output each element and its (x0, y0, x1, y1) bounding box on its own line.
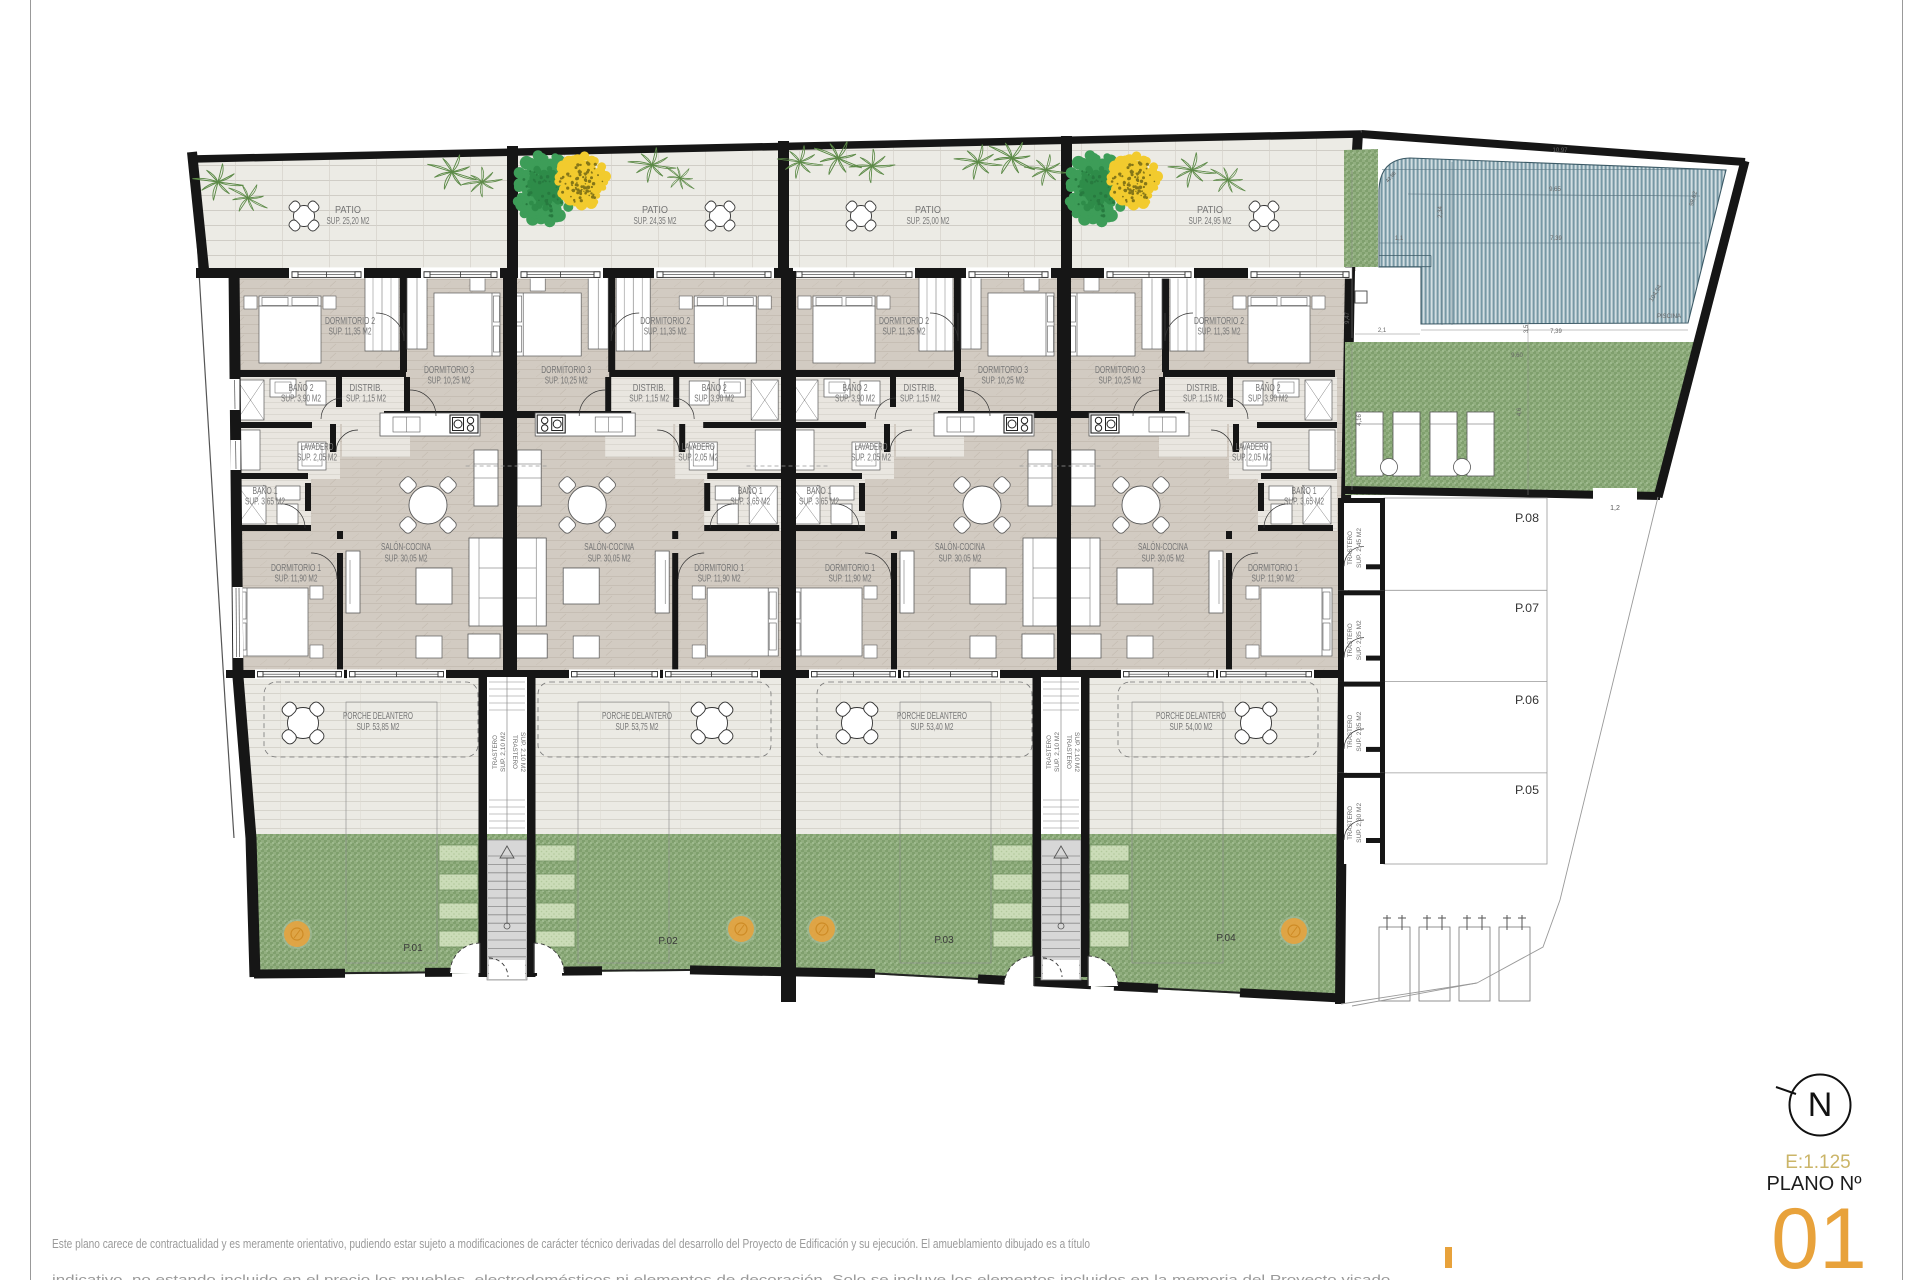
svg-text:P.06: P.06 (1515, 695, 1539, 707)
svg-text:PISCINA: PISCINA (1657, 314, 1681, 320)
svg-text:SUP. 3,90 M2: SUP. 3,90 M2 (1248, 394, 1288, 405)
svg-text:TRASTERO: TRASTERO (1347, 806, 1354, 840)
svg-text:DISTRIB.: DISTRIB. (350, 383, 383, 394)
svg-text:10,97: 10,97 (1552, 148, 1568, 154)
svg-text:SUP. 1,15 M2: SUP. 1,15 M2 (346, 394, 386, 405)
svg-text:DORMITORIO 2: DORMITORIO 2 (1194, 316, 1244, 327)
svg-text:SUP. 2,45 M2: SUP. 2,45 M2 (1356, 528, 1363, 568)
svg-text:DORMITORIO 1: DORMITORIO 1 (271, 563, 321, 574)
svg-text:P.02: P.02 (658, 936, 678, 947)
svg-text:TRASTERO: TRASTERO (511, 735, 518, 769)
svg-text:SUP. 54,00 M2: SUP. 54,00 M2 (1170, 722, 1213, 733)
svg-text:PATIO: PATIO (642, 205, 668, 216)
svg-text:SUP. 10,25 M2: SUP. 10,25 M2 (1099, 376, 1142, 387)
svg-text:P.05: P.05 (1515, 785, 1539, 797)
svg-text:3,5: 3,5 (1524, 324, 1530, 333)
svg-text:BAÑO 2: BAÑO 2 (843, 381, 868, 394)
svg-text:DORMITORIO 1: DORMITORIO 1 (825, 563, 875, 574)
svg-text:7,39: 7,39 (1550, 329, 1562, 335)
svg-text:indicativo, no estando incluid: indicativo, no estando incluido en el pr… (52, 1272, 1395, 1280)
svg-text:E:1.125: E:1.125 (1785, 1152, 1851, 1173)
svg-text:01: 01 (1771, 1191, 1867, 1280)
svg-text:BAÑO 1: BAÑO 1 (253, 484, 278, 497)
svg-text:DORMITORIO 2: DORMITORIO 2 (325, 316, 375, 327)
svg-text:SUP. 3,65 M2: SUP. 3,65 M2 (799, 497, 839, 508)
svg-text:SUP. 11,35 M2: SUP. 11,35 M2 (1198, 327, 1241, 338)
svg-text:SUP. 2,10 M2: SUP. 2,10 M2 (500, 732, 507, 772)
svg-text:SUP. 53,75 M2: SUP. 53,75 M2 (616, 722, 659, 733)
svg-text:SUP. 2,05 M2: SUP. 2,05 M2 (678, 453, 718, 464)
svg-text:SUP. 3,90 M2: SUP. 3,90 M2 (835, 394, 875, 405)
svg-text:BAÑO 2: BAÑO 2 (289, 381, 314, 394)
svg-text:SUP. 3,65 M2: SUP. 3,65 M2 (245, 497, 285, 508)
svg-text:P.07: P.07 (1515, 603, 1539, 615)
svg-text:P.03: P.03 (934, 935, 954, 946)
svg-text:SUP. 53,85 M2: SUP. 53,85 M2 (357, 722, 400, 733)
svg-text:DORMITORIO 3: DORMITORIO 3 (1095, 365, 1145, 376)
svg-text:SUP. 2,35 M2: SUP. 2,35 M2 (1356, 620, 1363, 660)
svg-text:TRASTERO: TRASTERO (492, 735, 499, 769)
svg-text:BAÑO 1: BAÑO 1 (807, 484, 832, 497)
svg-text:SALÓN-COCINA: SALÓN-COCINA (935, 540, 985, 553)
svg-text:SUP. 11,90 M2: SUP. 11,90 M2 (275, 574, 318, 585)
svg-text:P.08: P.08 (1515, 513, 1539, 525)
svg-text:PORCHE DELANTERO: PORCHE DELANTERO (602, 711, 672, 722)
svg-text:Este plano carece de contractu: Este plano carece de contractualidad y e… (52, 1236, 1090, 1251)
svg-text:SUP. 2,05 M2: SUP. 2,05 M2 (851, 453, 891, 464)
svg-text:DISTRIB.: DISTRIB. (1187, 383, 1220, 394)
svg-text:SUP. 11,35 M2: SUP. 11,35 M2 (644, 327, 687, 338)
svg-text:LAVADERO: LAVADERO (1236, 442, 1269, 453)
svg-text:SUP. 2,35 M2: SUP. 2,35 M2 (1356, 711, 1363, 751)
svg-text:LAVADERO: LAVADERO (301, 442, 334, 453)
svg-text:SUP. 10,25 M2: SUP. 10,25 M2 (428, 376, 471, 387)
svg-text:SUP. 24,95 M2: SUP. 24,95 M2 (1189, 216, 1232, 227)
svg-text:4,6: 4,6 (1517, 407, 1523, 416)
svg-text:SUP. 1,15 M2: SUP. 1,15 M2 (1183, 394, 1223, 405)
svg-text:TRASTERO: TRASTERO (1347, 623, 1354, 657)
svg-text:SUP. 24,35 M2: SUP. 24,35 M2 (634, 216, 677, 227)
svg-text:SUP. 2,10 M2: SUP. 2,10 M2 (519, 732, 526, 772)
svg-text:SUP. 30,05 M2: SUP. 30,05 M2 (588, 554, 631, 565)
svg-text:7,39: 7,39 (1550, 236, 1562, 242)
svg-text:SUP. 2,30 M2: SUP. 2,30 M2 (1356, 803, 1363, 843)
svg-text:SUP. 25,20 M2: SUP. 25,20 M2 (327, 216, 370, 227)
svg-text:4,16: 4,16 (1357, 414, 1363, 426)
svg-text:PATIO: PATIO (1197, 205, 1223, 216)
svg-text:N: N (1808, 1086, 1833, 1124)
svg-text:DORMITORIO 2: DORMITORIO 2 (640, 316, 690, 327)
svg-text:SUP. 1,15 M2: SUP. 1,15 M2 (629, 394, 669, 405)
svg-text:SUP. 3,90 M2: SUP. 3,90 M2 (281, 394, 321, 405)
svg-text:SUP. 53,40 M2: SUP. 53,40 M2 (911, 722, 954, 733)
svg-text:SUP. 25,00 M2: SUP. 25,00 M2 (907, 216, 950, 227)
svg-text:SUP. 2,05 M2: SUP. 2,05 M2 (1232, 453, 1272, 464)
svg-text:DISTRIB.: DISTRIB. (904, 383, 937, 394)
svg-text:SUP. 30,05 M2: SUP. 30,05 M2 (939, 554, 982, 565)
svg-text:9,65: 9,65 (1549, 187, 1561, 193)
svg-text:BAÑO 2: BAÑO 2 (702, 381, 727, 394)
svg-text:SUP. 2,05 M2: SUP. 2,05 M2 (297, 453, 337, 464)
svg-text:SALÓN-COCINA: SALÓN-COCINA (1138, 540, 1188, 553)
svg-text:SUP. 3,65 M2: SUP. 3,65 M2 (1284, 497, 1324, 508)
svg-text:SUP. 30,05 M2: SUP. 30,05 M2 (1142, 554, 1185, 565)
svg-text:2,34: 2,34 (1438, 206, 1444, 218)
svg-text:SUP. 1,15 M2: SUP. 1,15 M2 (900, 394, 940, 405)
svg-text:PORCHE DELANTERO: PORCHE DELANTERO (1156, 711, 1226, 722)
svg-text:DORMITORIO 2: DORMITORIO 2 (879, 316, 929, 327)
svg-text:SUP. 2,10 M2: SUP. 2,10 M2 (1073, 732, 1080, 772)
svg-text:SUP. 3,65 M2: SUP. 3,65 M2 (730, 497, 770, 508)
svg-text:PORCHE DELANTERO: PORCHE DELANTERO (897, 711, 967, 722)
svg-text:DORMITORIO 3: DORMITORIO 3 (978, 365, 1028, 376)
svg-text:LAVADERO: LAVADERO (855, 442, 888, 453)
svg-text:SUP. 2,10 M2: SUP. 2,10 M2 (1054, 732, 1061, 772)
svg-text:2,1: 2,1 (1378, 328, 1387, 334)
svg-text:P.04: P.04 (1216, 933, 1236, 944)
svg-text:DORMITORIO 1: DORMITORIO 1 (694, 563, 744, 574)
svg-text:SUP. 11,35 M2: SUP. 11,35 M2 (329, 327, 372, 338)
svg-text:SALÓN-COCINA: SALÓN-COCINA (381, 540, 431, 553)
svg-text:9,60: 9,60 (1511, 353, 1523, 359)
svg-text:P.01: P.01 (403, 943, 423, 954)
svg-text:TRASTERO: TRASTERO (1347, 531, 1354, 565)
svg-text:DORMITORIO 1: DORMITORIO 1 (1248, 563, 1298, 574)
svg-text:SUP. 11,90 M2: SUP. 11,90 M2 (1252, 574, 1295, 585)
svg-text:SUP. 30,05 M2: SUP. 30,05 M2 (385, 554, 428, 565)
svg-text:SUP. 11,35 M2: SUP. 11,35 M2 (883, 327, 926, 338)
svg-text:SUP. 11,90 M2: SUP. 11,90 M2 (698, 574, 741, 585)
svg-text:BAÑO 2: BAÑO 2 (1256, 381, 1281, 394)
svg-text:LAVADERO: LAVADERO (682, 442, 715, 453)
svg-text:PATIO: PATIO (915, 205, 941, 216)
svg-text:9,47: 9,47 (1345, 312, 1351, 324)
svg-text:TRASTERO: TRASTERO (1347, 715, 1354, 749)
svg-text:1,2: 1,2 (1610, 505, 1620, 512)
svg-text:SALÓN-COCINA: SALÓN-COCINA (584, 540, 634, 553)
svg-text:BAÑO 1: BAÑO 1 (1292, 484, 1317, 497)
svg-text:SUP. 10,25 M2: SUP. 10,25 M2 (982, 376, 1025, 387)
svg-text:PATIO: PATIO (335, 205, 361, 216)
svg-text:BAÑO 1: BAÑO 1 (738, 484, 763, 497)
svg-text:DORMITORIO 3: DORMITORIO 3 (424, 365, 474, 376)
svg-text:DISTRIB.: DISTRIB. (633, 383, 666, 394)
svg-text:1,1: 1,1 (1395, 236, 1404, 242)
svg-text:SUP. 3,90 M2: SUP. 3,90 M2 (694, 394, 734, 405)
svg-text:PORCHE DELANTERO: PORCHE DELANTERO (343, 711, 413, 722)
svg-text:DORMITORIO 3: DORMITORIO 3 (541, 365, 591, 376)
svg-text:SUP. 10,25 M2: SUP. 10,25 M2 (545, 376, 588, 387)
svg-text:TRASTERO: TRASTERO (1046, 735, 1053, 769)
svg-text:SUP. 11,90 M2: SUP. 11,90 M2 (829, 574, 872, 585)
svg-text:TRASTERO: TRASTERO (1065, 735, 1072, 769)
